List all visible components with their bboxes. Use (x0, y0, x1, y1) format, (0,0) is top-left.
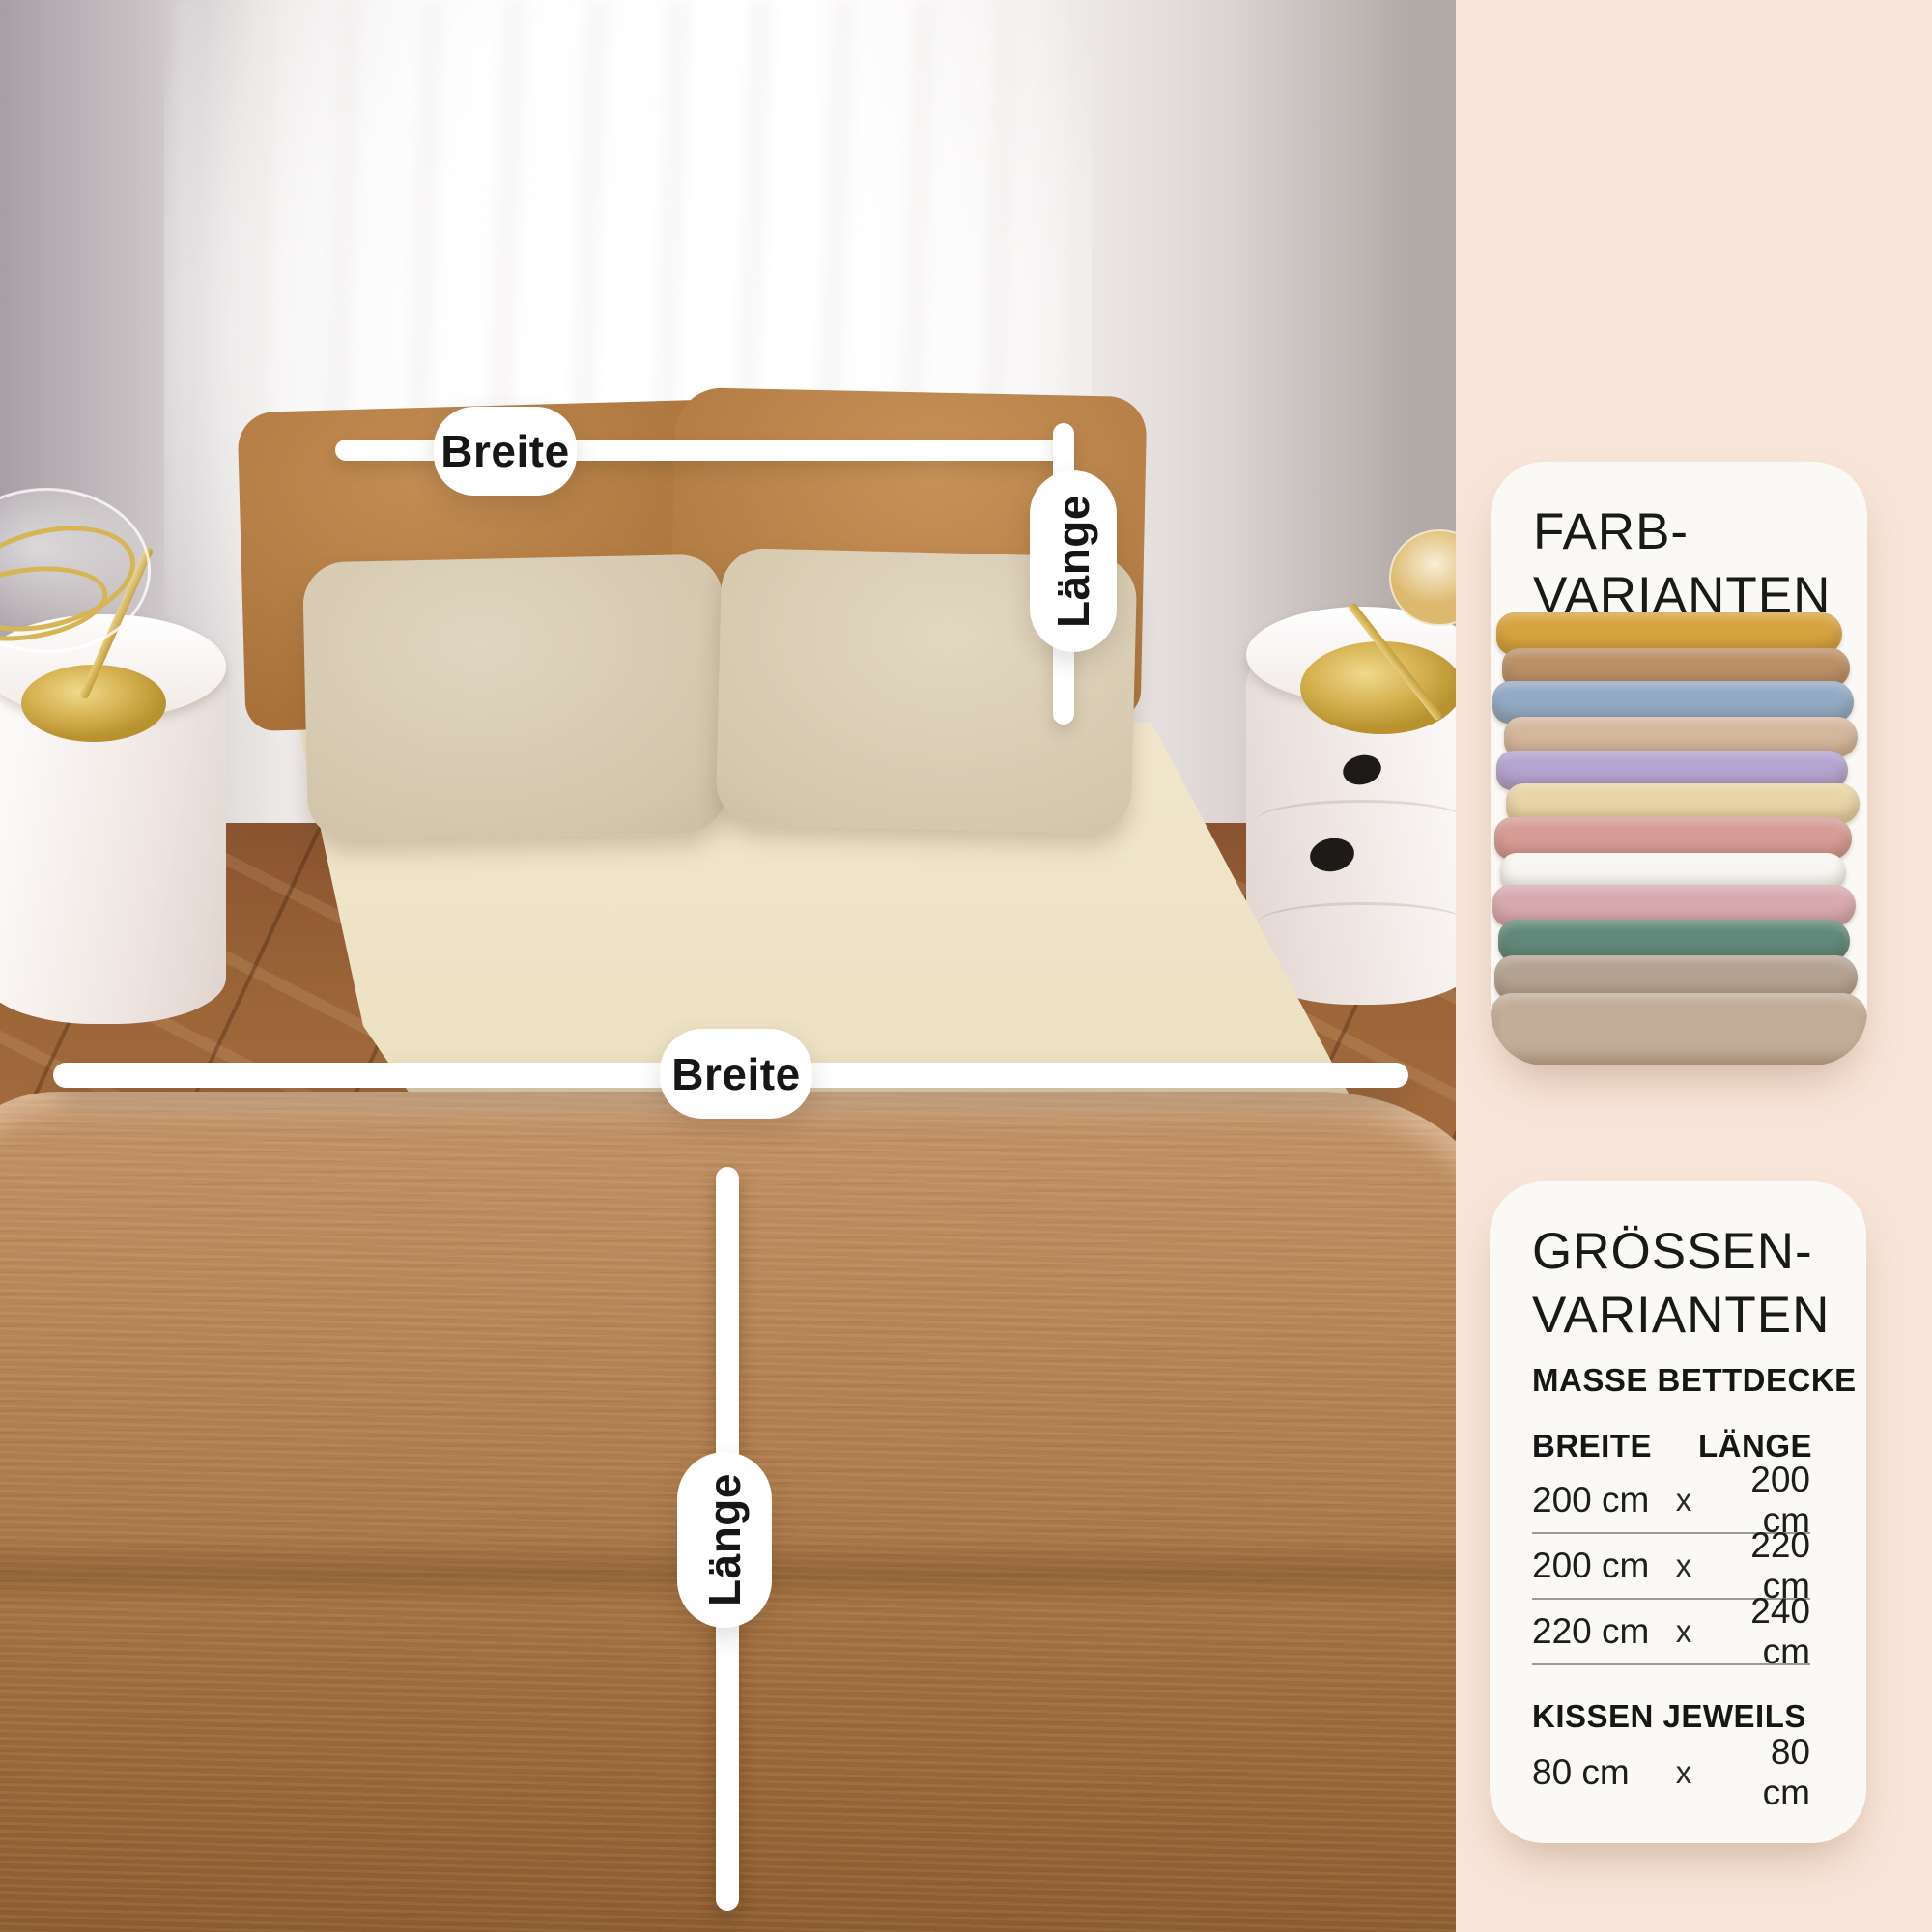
drawer-seam (1256, 800, 1456, 841)
pillow-length-label-text: Länge (1047, 495, 1099, 628)
pillow-size-heading: KISSEN JEWEILS (1532, 1698, 1866, 1735)
length-value: 80 cm (1716, 1732, 1810, 1813)
size-variants-card: GRÖSSEN- VARIANTEN MASSE BETTDECKE BREIT… (1490, 1181, 1866, 1843)
color-variants-title-line1: FARB- (1533, 503, 1689, 560)
pillow-width-label: Breite (434, 407, 577, 496)
length-value: 240 cm (1716, 1591, 1810, 1672)
size-table: MASSE BETTDECKE BREITE LÄNGE 200 cmx200 … (1490, 1362, 1866, 1795)
size-row: 80 cm x 80 cm (1532, 1750, 1810, 1795)
duvet-width-label: Breite (660, 1029, 812, 1119)
bedroom-photo: Breite Länge Breite Länge (0, 0, 1456, 1932)
pillow-cream-left (302, 554, 727, 840)
lamp-base-right (1300, 641, 1456, 734)
size-variants-title: GRÖSSEN- VARIANTEN (1490, 1181, 1866, 1347)
color-variants-title: FARB- VARIANTEN (1491, 462, 1867, 627)
fabric-swatch-sand (1491, 993, 1867, 1065)
product-infographic: Breite Länge Breite Länge FARB- VARIANTE… (0, 0, 1932, 1932)
width-value: 80 cm (1532, 1752, 1652, 1793)
duvet-dimensions-heading: MASSE BETTDECKE (1532, 1362, 1866, 1399)
drawer-seam (1258, 902, 1456, 944)
size-row: 200 cmx200 cm (1532, 1478, 1810, 1522)
duvet-length-label-text: Länge (698, 1473, 751, 1606)
width-value: 200 cm (1532, 1546, 1652, 1586)
width-column-header: BREITE (1532, 1428, 1698, 1464)
variants-sidebar: FARB- VARIANTEN GRÖSSEN- VARIANTEN MASSE… (1456, 0, 1932, 1932)
size-table-header: BREITE LÄNGE (1532, 1428, 1866, 1464)
size-row: 220 cmx240 cm (1532, 1609, 1810, 1654)
size-rows: 200 cmx200 cm200 cmx220 cm220 cmx240 cm (1532, 1478, 1810, 1665)
x-separator: x (1652, 1754, 1716, 1791)
width-value: 220 cm (1532, 1611, 1652, 1652)
size-row: 200 cmx220 cm (1532, 1544, 1810, 1588)
pillow-length-label: Länge (1030, 470, 1117, 652)
size-variants-title-line1: GRÖSSEN- (1532, 1223, 1813, 1280)
pillow-size-row: 80 cm x 80 cm (1532, 1750, 1810, 1795)
x-separator: x (1652, 1482, 1716, 1519)
size-variants-title-line2: VARIANTEN (1532, 1287, 1830, 1344)
width-value: 200 cm (1532, 1480, 1652, 1520)
x-separator: x (1652, 1548, 1716, 1584)
pillow-width-label-text: Breite (440, 425, 569, 477)
color-variants-card: FARB- VARIANTEN (1491, 462, 1867, 1065)
x-separator: x (1652, 1613, 1716, 1650)
fabric-color-stack (1491, 619, 1867, 1065)
duvet-length-label: Länge (677, 1452, 772, 1628)
duvet-width-label-text: Breite (671, 1048, 800, 1100)
